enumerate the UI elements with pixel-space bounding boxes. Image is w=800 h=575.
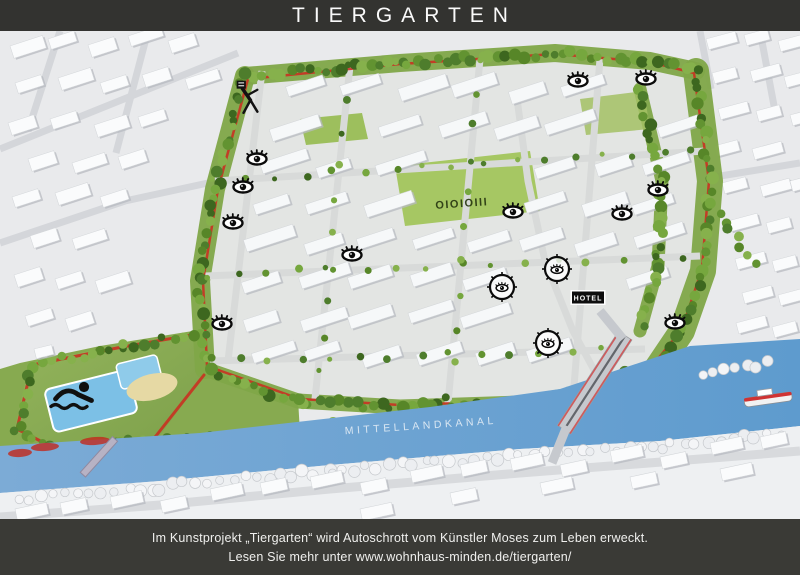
map-area: MITTELLANDKANALHOTELOIOIOIII <box>0 31 800 519</box>
footer-line2-prefix: Lesen Sie mehr unter <box>228 550 352 564</box>
circled-eye-marker <box>533 328 563 358</box>
footer-line2: Lesen Sie mehr unter www.wohnhaus-minden… <box>228 550 571 564</box>
page-title: TIERGARTEN <box>283 4 517 28</box>
map-render: MITTELLANDKANALHOTELOIOIOIII <box>0 31 800 519</box>
header-bar: TIERGARTEN <box>0 0 800 31</box>
circled-eye-marker <box>542 254 572 284</box>
poster: TIERGARTEN MITTELLANDKANALHOTELOIOIOIII … <box>0 0 800 575</box>
footer-line1: Im Kunstprojekt „Tiergarten“ wird Autosc… <box>152 531 648 545</box>
hotel-label: HOTEL <box>571 290 606 305</box>
svg-text:HOTEL: HOTEL <box>574 296 603 303</box>
footer-url[interactable]: www.wohnhaus-minden.de/tiergarten/ <box>356 550 572 564</box>
footer-bar: Im Kunstprojekt „Tiergarten“ wird Autosc… <box>0 519 800 575</box>
circled-eye-marker <box>487 272 517 302</box>
